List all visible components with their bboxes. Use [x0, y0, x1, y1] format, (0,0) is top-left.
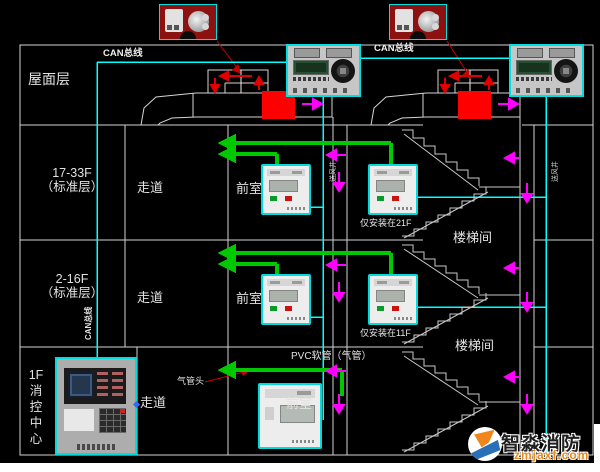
- pvc-pipe-label: PVC软管（气管）: [291, 351, 372, 363]
- note-only-11f: 仅安装在11F: [360, 328, 411, 338]
- green-button: [270, 196, 277, 201]
- air-outlet-box-21f: [368, 164, 418, 215]
- red-button: [392, 196, 399, 201]
- box-label-marks: [287, 317, 305, 320]
- green-button: [377, 306, 384, 311]
- box-vents: [267, 279, 305, 286]
- drawing-canvas: CAN总线 CAN总线 CAN总线 屋面层 17-33F （标准层） 2-16F…: [0, 0, 600, 472]
- sensor-horn: [188, 11, 209, 32]
- sensor-horn: [418, 11, 439, 32]
- controller-terminal-strip: [293, 88, 353, 93]
- fan-controller-left: [286, 44, 361, 97]
- floor-label-1f-control-center: 1F 消 控 中 心: [25, 367, 47, 447]
- pressure-sensor-left: [159, 4, 217, 40]
- controller-buttons: [293, 77, 329, 81]
- box-screen: [376, 290, 405, 302]
- box-screen: [269, 180, 298, 192]
- floor-label-line1: 17-33F: [22, 166, 122, 180]
- corridor-label-row3: 走道: [140, 396, 166, 411]
- controller-lcd: [293, 60, 329, 75]
- corridor-label-row1: 走道: [137, 181, 163, 196]
- watermark-domain: zmjaxf.com: [514, 448, 589, 462]
- air-outlet-box-row1-left: [261, 164, 311, 215]
- airflow-arrows: [302, 99, 532, 413]
- box-vents: [374, 279, 412, 286]
- box-screen: [269, 290, 298, 302]
- green-button: [377, 196, 384, 201]
- can-bus-label-left: CAN总线: [103, 49, 143, 60]
- fire-alarm-control-panel: [55, 357, 137, 455]
- sensor-panel: [165, 9, 183, 32]
- shaft-label-right: 送风井: [552, 148, 560, 182]
- box-marks: [265, 407, 274, 420]
- floor-label-roof: 屋面层: [28, 71, 70, 87]
- stairwell-label-2: 楼梯间: [455, 339, 494, 354]
- front-room-label-row1: 前室: [236, 182, 262, 197]
- air-outlet-box-11f: [368, 274, 418, 325]
- can-bus-label-vertical: CAN总线: [84, 308, 93, 340]
- box-label-marks: [394, 317, 412, 320]
- controller-connector: [326, 48, 352, 58]
- front-room-label-row2: 前室: [236, 292, 262, 307]
- controller-connector: [294, 48, 320, 58]
- watermark-logo: [468, 427, 502, 461]
- controller-buttons: [516, 77, 552, 81]
- tube-head-label: 气管头: [177, 376, 204, 386]
- box-screen: [376, 180, 405, 192]
- stairs: [402, 130, 520, 452]
- sensor-panel: [395, 9, 413, 32]
- controller-keypad: [331, 59, 355, 83]
- controller-terminal-strip: [516, 88, 576, 93]
- sensor-notch: [180, 31, 196, 39]
- panel-brand-marks: [77, 444, 115, 450]
- air-outlet-box-1f: [258, 383, 322, 449]
- red-button: [285, 306, 292, 311]
- floor-label-line2: （标准层）: [22, 286, 122, 300]
- page-margin-bottom: [0, 463, 600, 472]
- red-button: [392, 306, 399, 311]
- panel-keypad: [99, 408, 126, 433]
- box-label-marks: [292, 440, 314, 443]
- box-vents: [267, 169, 305, 176]
- pressure-sensor-right: [389, 4, 447, 40]
- controller-lcd: [516, 60, 552, 75]
- panel-button-columns: [97, 372, 123, 400]
- stairwell-label-1: 楼梯间: [453, 231, 492, 246]
- box-label-marks: [287, 207, 305, 210]
- floor-label-2-16: 2-16F （标准层）: [22, 272, 122, 301]
- air-outlet-box-row2-left: [261, 274, 311, 325]
- controller-connector: [549, 48, 575, 58]
- page-margin-right: [594, 424, 600, 463]
- panel-screen: [68, 372, 94, 398]
- fan-controller-right: [509, 44, 584, 97]
- floor-1f-char: 中: [25, 415, 47, 431]
- front-room-label-row3: 前室: [286, 397, 312, 412]
- controller-keypad: [554, 59, 578, 83]
- box-label-marks: [394, 207, 412, 210]
- red-button: [285, 196, 292, 201]
- floor-1f-char: 消: [25, 383, 47, 399]
- panel-printer: [64, 409, 94, 431]
- floor-label-17-33: 17-33F （标准层）: [22, 166, 122, 195]
- green-button: [270, 306, 277, 311]
- panel-display-area: [64, 368, 126, 404]
- floor-label-line2: （标准层）: [22, 180, 122, 194]
- floor-1f-char: 心: [25, 431, 47, 447]
- box-vents: [374, 169, 412, 176]
- floor-1f-char: 1F: [25, 367, 47, 383]
- can-bus-label-right: CAN总线: [374, 44, 414, 55]
- note-only-21f: 仅安装在21F: [360, 218, 412, 228]
- shaft-label-left: 送风井: [330, 148, 338, 182]
- floor-1f-char: 控: [25, 399, 47, 415]
- floor-label-line1: 2-16F: [22, 272, 122, 286]
- controller-connector: [517, 48, 543, 58]
- corridor-label-row2: 走道: [137, 291, 163, 306]
- sensor-notch: [410, 31, 426, 39]
